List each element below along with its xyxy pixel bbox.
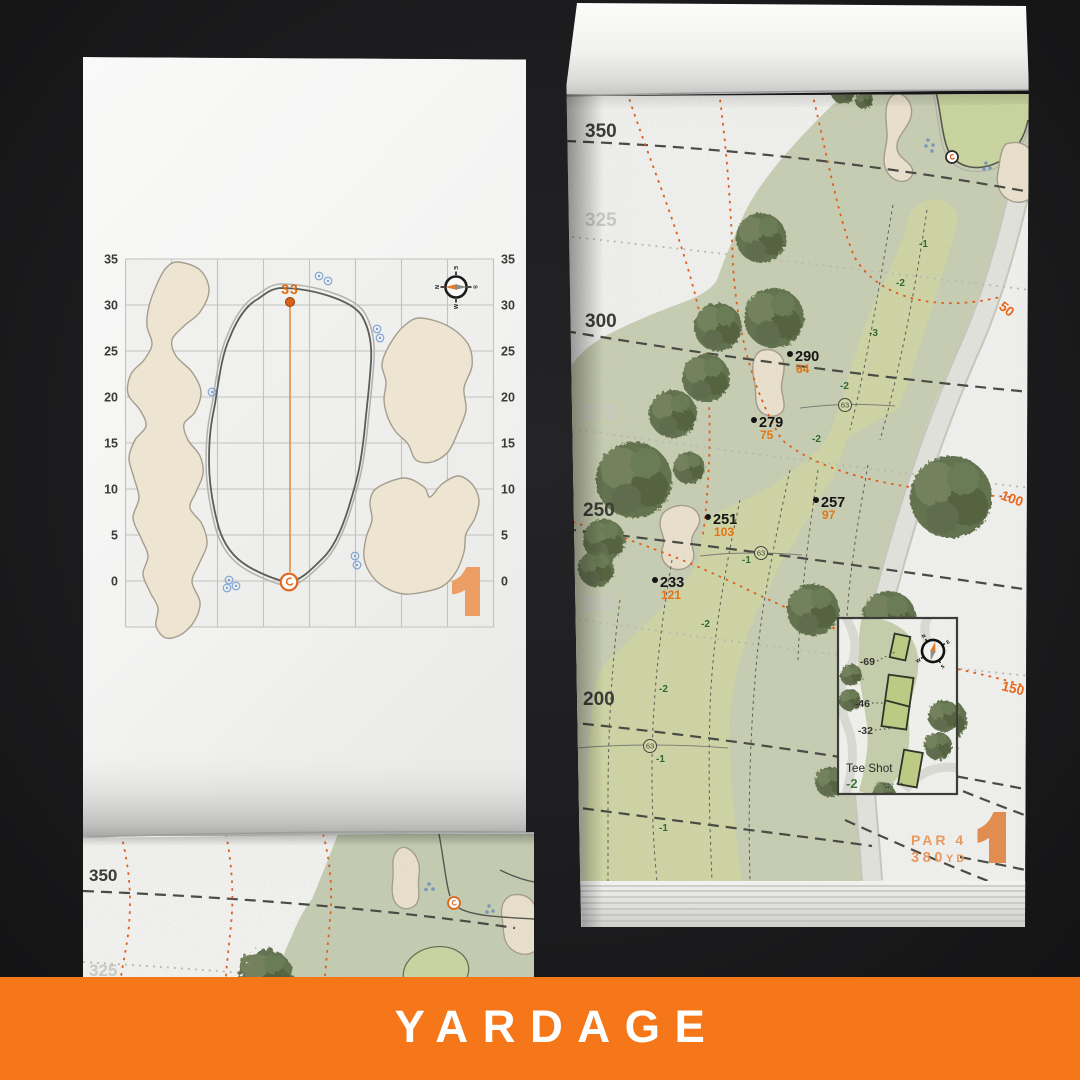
svg-text:-32: -32: [858, 725, 873, 737]
svg-text:350: 350: [89, 866, 117, 885]
svg-text:0: 0: [501, 575, 508, 589]
svg-text:33: 33: [281, 281, 299, 297]
svg-text:-2: -2: [840, 381, 849, 392]
svg-text:-1: -1: [659, 823, 668, 834]
svg-text:20: 20: [104, 391, 118, 405]
svg-text:15: 15: [104, 437, 118, 451]
svg-text:-1: -1: [919, 239, 928, 250]
svg-text:5: 5: [111, 529, 118, 543]
svg-text:-2: -2: [701, 619, 710, 630]
svg-text:10: 10: [501, 483, 515, 497]
svg-text:35: 35: [104, 253, 118, 267]
svg-text:PAR 4: PAR 4: [911, 832, 966, 848]
svg-text:63: 63: [841, 401, 849, 410]
svg-text:30: 30: [501, 299, 515, 313]
svg-text:75: 75: [760, 428, 774, 442]
svg-text:121: 121: [661, 588, 681, 602]
svg-text:20: 20: [501, 391, 515, 405]
svg-text:5: 5: [501, 529, 508, 543]
svg-text:103: 103: [714, 525, 734, 539]
svg-text:25: 25: [501, 345, 515, 359]
svg-text:30: 30: [104, 299, 118, 313]
svg-text:-69: -69: [860, 656, 875, 668]
svg-text:35: 35: [501, 253, 515, 267]
svg-text:63: 63: [646, 742, 654, 751]
svg-text:-2: -2: [846, 776, 858, 791]
svg-text:64: 64: [796, 362, 810, 376]
svg-text:97: 97: [822, 508, 836, 522]
svg-text:-2: -2: [659, 684, 668, 695]
svg-text:E: E: [452, 266, 458, 270]
svg-text:-2: -2: [812, 434, 821, 445]
svg-text:N: N: [435, 285, 441, 289]
svg-text:-46: -46: [855, 698, 870, 710]
svg-text:15: 15: [501, 437, 515, 451]
svg-text:-2: -2: [896, 278, 905, 289]
svg-text:25: 25: [104, 345, 118, 359]
svg-text:YARDAGE: YARDAGE: [395, 1001, 720, 1052]
svg-text:..: ..: [885, 780, 890, 790]
svg-text:Tee Shot: Tee Shot: [846, 761, 893, 775]
svg-text:10: 10: [104, 483, 118, 497]
svg-text:W: W: [454, 303, 460, 309]
svg-text:-1: -1: [656, 754, 665, 765]
svg-text:0: 0: [111, 575, 118, 589]
svg-text:S: S: [472, 285, 478, 289]
svg-text:63: 63: [757, 549, 765, 558]
svg-text:380YD: 380YD: [911, 850, 967, 866]
svg-text:-1: -1: [742, 555, 751, 566]
svg-text:-3: -3: [869, 328, 878, 339]
